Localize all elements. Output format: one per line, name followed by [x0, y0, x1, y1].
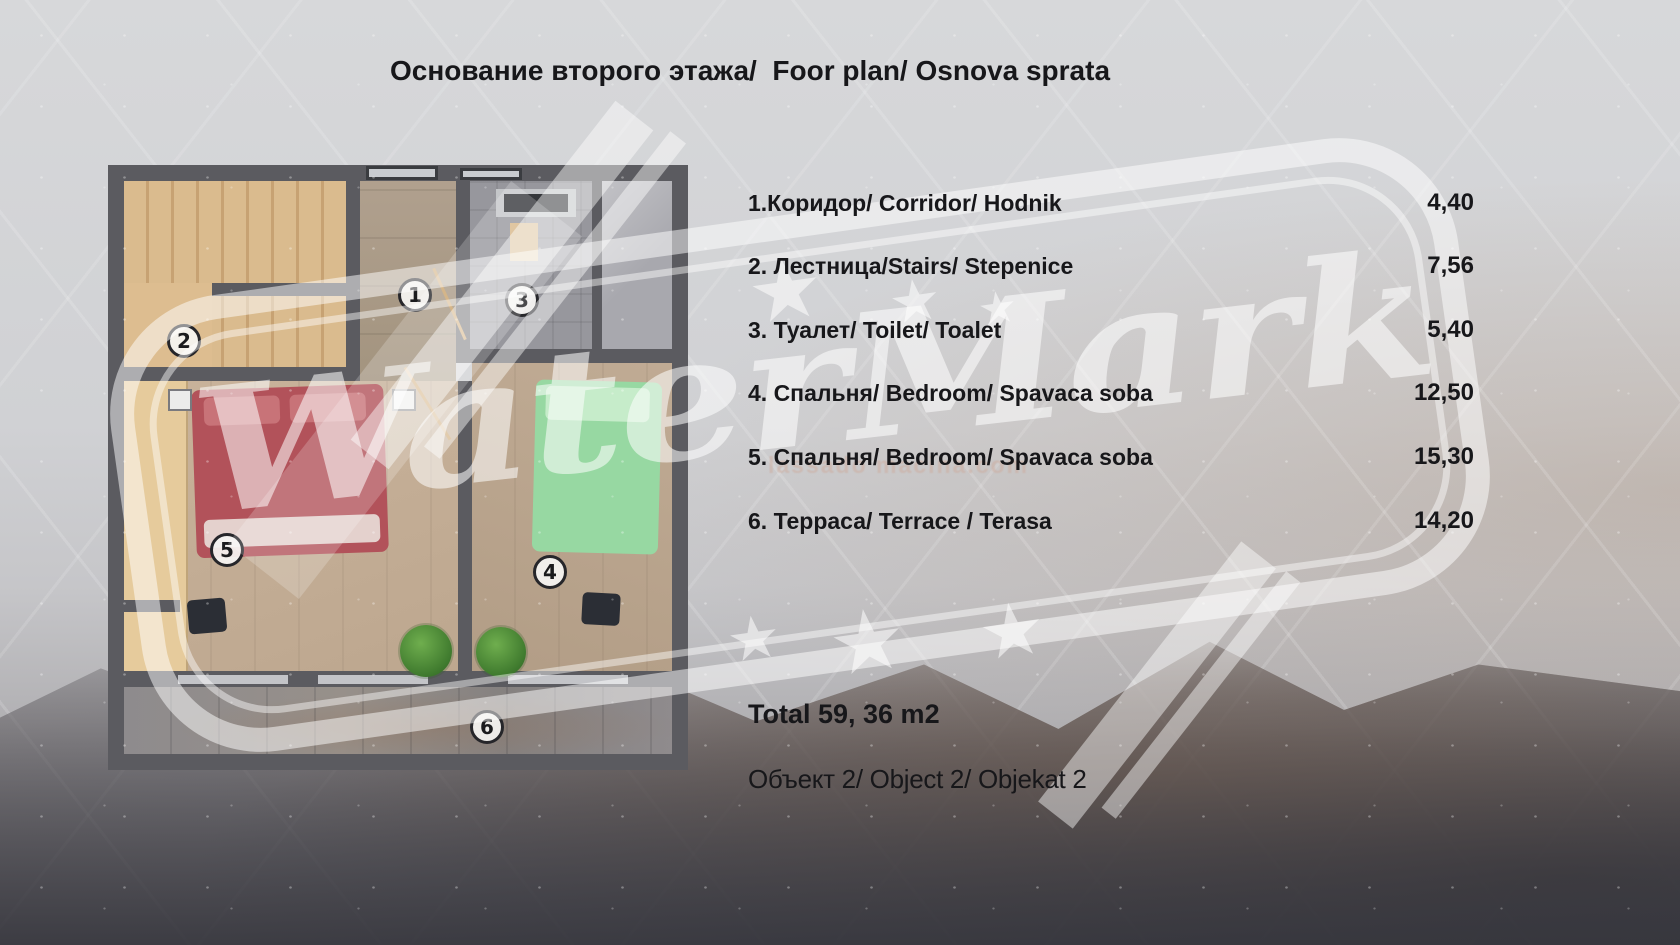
legend-label: 1.Коридор/ Corridor/ Hodnik	[748, 190, 1062, 217]
terrace-floor	[124, 687, 672, 754]
railing-window-slot	[318, 675, 428, 684]
legend-value: 14,20	[1414, 507, 1474, 535]
star-icon: ★	[974, 590, 1050, 673]
room-number-4: 4	[533, 555, 567, 589]
floor-plan: 1 2 3 4 5 6	[108, 165, 688, 770]
wall-stub-bedroom5	[124, 600, 180, 612]
nightstand	[168, 389, 192, 411]
wall-outer-bottom	[108, 754, 688, 770]
bedroom5-wardrobe-strip	[124, 381, 188, 671]
wall-stairs-corridor	[346, 181, 360, 381]
wall-shower-divider	[592, 181, 602, 349]
room-number-2: 2	[167, 324, 201, 358]
sink-basin	[504, 194, 568, 212]
pillow	[289, 392, 366, 423]
object-label: Объект 2/ Object 2/ Objekat 2	[748, 764, 1087, 795]
legend-label: 4. Спальня/ Bedroom/ Spavaca soba	[748, 380, 1153, 407]
watermark-stripe	[1102, 571, 1301, 818]
wall-between-bedrooms	[458, 381, 472, 671]
page-title: Основание второго этажа/ Foor plan/ Osno…	[100, 55, 1400, 87]
legend-label: 6. Терраса/ Terrace / Terasa	[748, 508, 1052, 535]
legend-row-bedroom4: 4. Спальня/ Bedroom/ Spavaca soba 12,50	[748, 372, 1474, 414]
legend-value: 15,30	[1414, 443, 1474, 471]
floor-plan-page: 1 2 3 4 5 6 ★ ★ ★ ★ ★ ★ WaterMark lassad…	[0, 0, 1680, 945]
toilet-door-opening	[510, 223, 538, 261]
total-area-label: Total 59, 36 m2	[748, 699, 940, 730]
shower-area-floor	[602, 181, 672, 349]
railing-window-slot	[508, 675, 628, 684]
legend-row-terrace: 6. Терраса/ Terrace / Terasa 14,20	[748, 500, 1474, 542]
legend-label: 3. Туалет/ Toilet/ Toalet	[748, 317, 1001, 344]
wall-outer-left	[108, 165, 124, 770]
star-icon: ★	[823, 594, 911, 690]
legend-row-stairs: 2. Лестница/Stairs/ Stepenice 7,56	[748, 245, 1474, 287]
window-top-toilet	[460, 168, 522, 180]
legend-row-toilet: 3. Туалет/ Toilet/ Toalet 5,40	[748, 309, 1474, 351]
nightstand	[392, 389, 416, 411]
bed-red	[191, 384, 389, 559]
stair-rail-wall	[212, 283, 346, 296]
room-number-6: 6	[470, 710, 504, 744]
legend-value: 7,56	[1427, 252, 1474, 280]
dark-stool	[581, 592, 621, 626]
wall-outer-right	[672, 165, 688, 770]
railing-window-slot	[178, 675, 288, 684]
legend-label: 5. Спальня/ Bedroom/ Spavaca soba	[748, 444, 1153, 471]
stair-landing	[124, 283, 212, 367]
pillow	[203, 395, 280, 426]
dark-stool	[187, 597, 228, 634]
legend-row-bedroom5: 5. Спальня/ Bedroom/ Spavaca soba 15,30	[748, 436, 1474, 478]
legend-value: 12,50	[1414, 379, 1474, 407]
wall-under-stairs	[124, 367, 360, 381]
legend-value: 4,40	[1427, 189, 1474, 217]
legend-row-corridor: 1.Коридор/ Corridor/ Hodnik 4,40	[748, 182, 1474, 224]
window-top-corridor	[366, 166, 438, 180]
room-number-5: 5	[210, 533, 244, 567]
room-legend: 1.Коридор/ Corridor/ Hodnik 4,40 2. Лест…	[748, 182, 1474, 582]
star-icon: ★	[723, 606, 785, 673]
room-number-3: 3	[505, 283, 539, 317]
potted-plant	[400, 625, 452, 677]
bed-green	[532, 379, 662, 554]
potted-plant	[476, 627, 526, 677]
pillow	[545, 386, 650, 423]
wall-under-toilet	[456, 349, 672, 363]
legend-label: 2. Лестница/Stairs/ Stepenice	[748, 253, 1073, 280]
room-number-1: 1	[398, 278, 432, 312]
legend-value: 5,40	[1427, 316, 1474, 344]
